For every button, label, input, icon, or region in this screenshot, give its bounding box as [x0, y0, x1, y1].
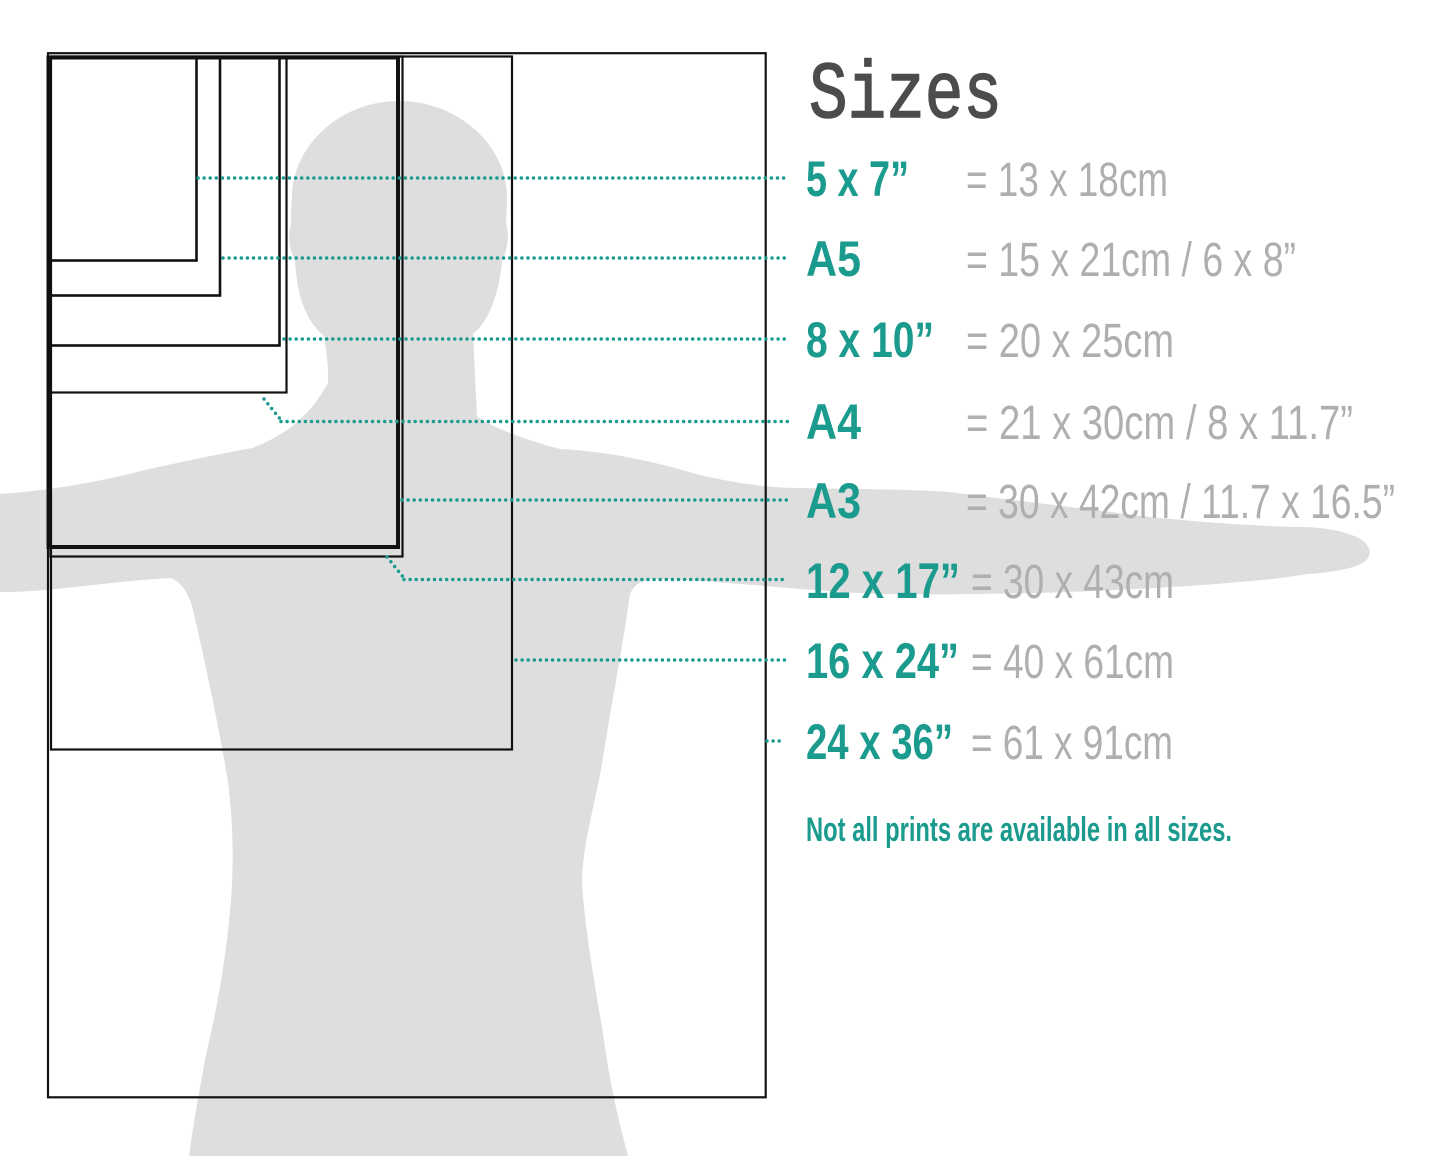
svg-text:= 30 x 42cm / 11.7 x 16.5”: = 30 x 42cm / 11.7 x 16.5”: [966, 476, 1395, 529]
svg-text:= 40 x 61cm: = 40 x 61cm: [971, 636, 1174, 689]
svg-text:A4: A4: [806, 394, 861, 450]
svg-text:24 x 36”: 24 x 36”: [806, 714, 953, 770]
svg-text:= 20 x 25cm: = 20 x 25cm: [966, 315, 1174, 368]
svg-text:8 x 10”: 8 x 10”: [806, 312, 934, 368]
svg-text:A3: A3: [806, 473, 861, 529]
svg-text:Sizes: Sizes: [809, 51, 1002, 142]
svg-text:5 x 7”: 5 x 7”: [806, 151, 909, 207]
svg-text:16 x 24”: 16 x 24”: [806, 633, 959, 689]
svg-text:= 30 x 43cm: = 30 x 43cm: [971, 556, 1174, 609]
svg-text:Not all prints are available i: Not all prints are available in all size…: [806, 811, 1232, 849]
svg-text:A5: A5: [806, 231, 861, 287]
svg-text:12 x 17”: 12 x 17”: [806, 553, 960, 609]
svg-text:= 21 x 30cm / 8 x 11.7”: = 21 x 30cm / 8 x 11.7”: [966, 397, 1353, 450]
svg-text:= 61 x 91cm: = 61 x 91cm: [971, 717, 1173, 770]
svg-text:= 15 x 21cm / 6 x 8”: = 15 x 21cm / 6 x 8”: [966, 234, 1296, 287]
svg-text:= 13 x 18cm: = 13 x 18cm: [966, 154, 1168, 207]
